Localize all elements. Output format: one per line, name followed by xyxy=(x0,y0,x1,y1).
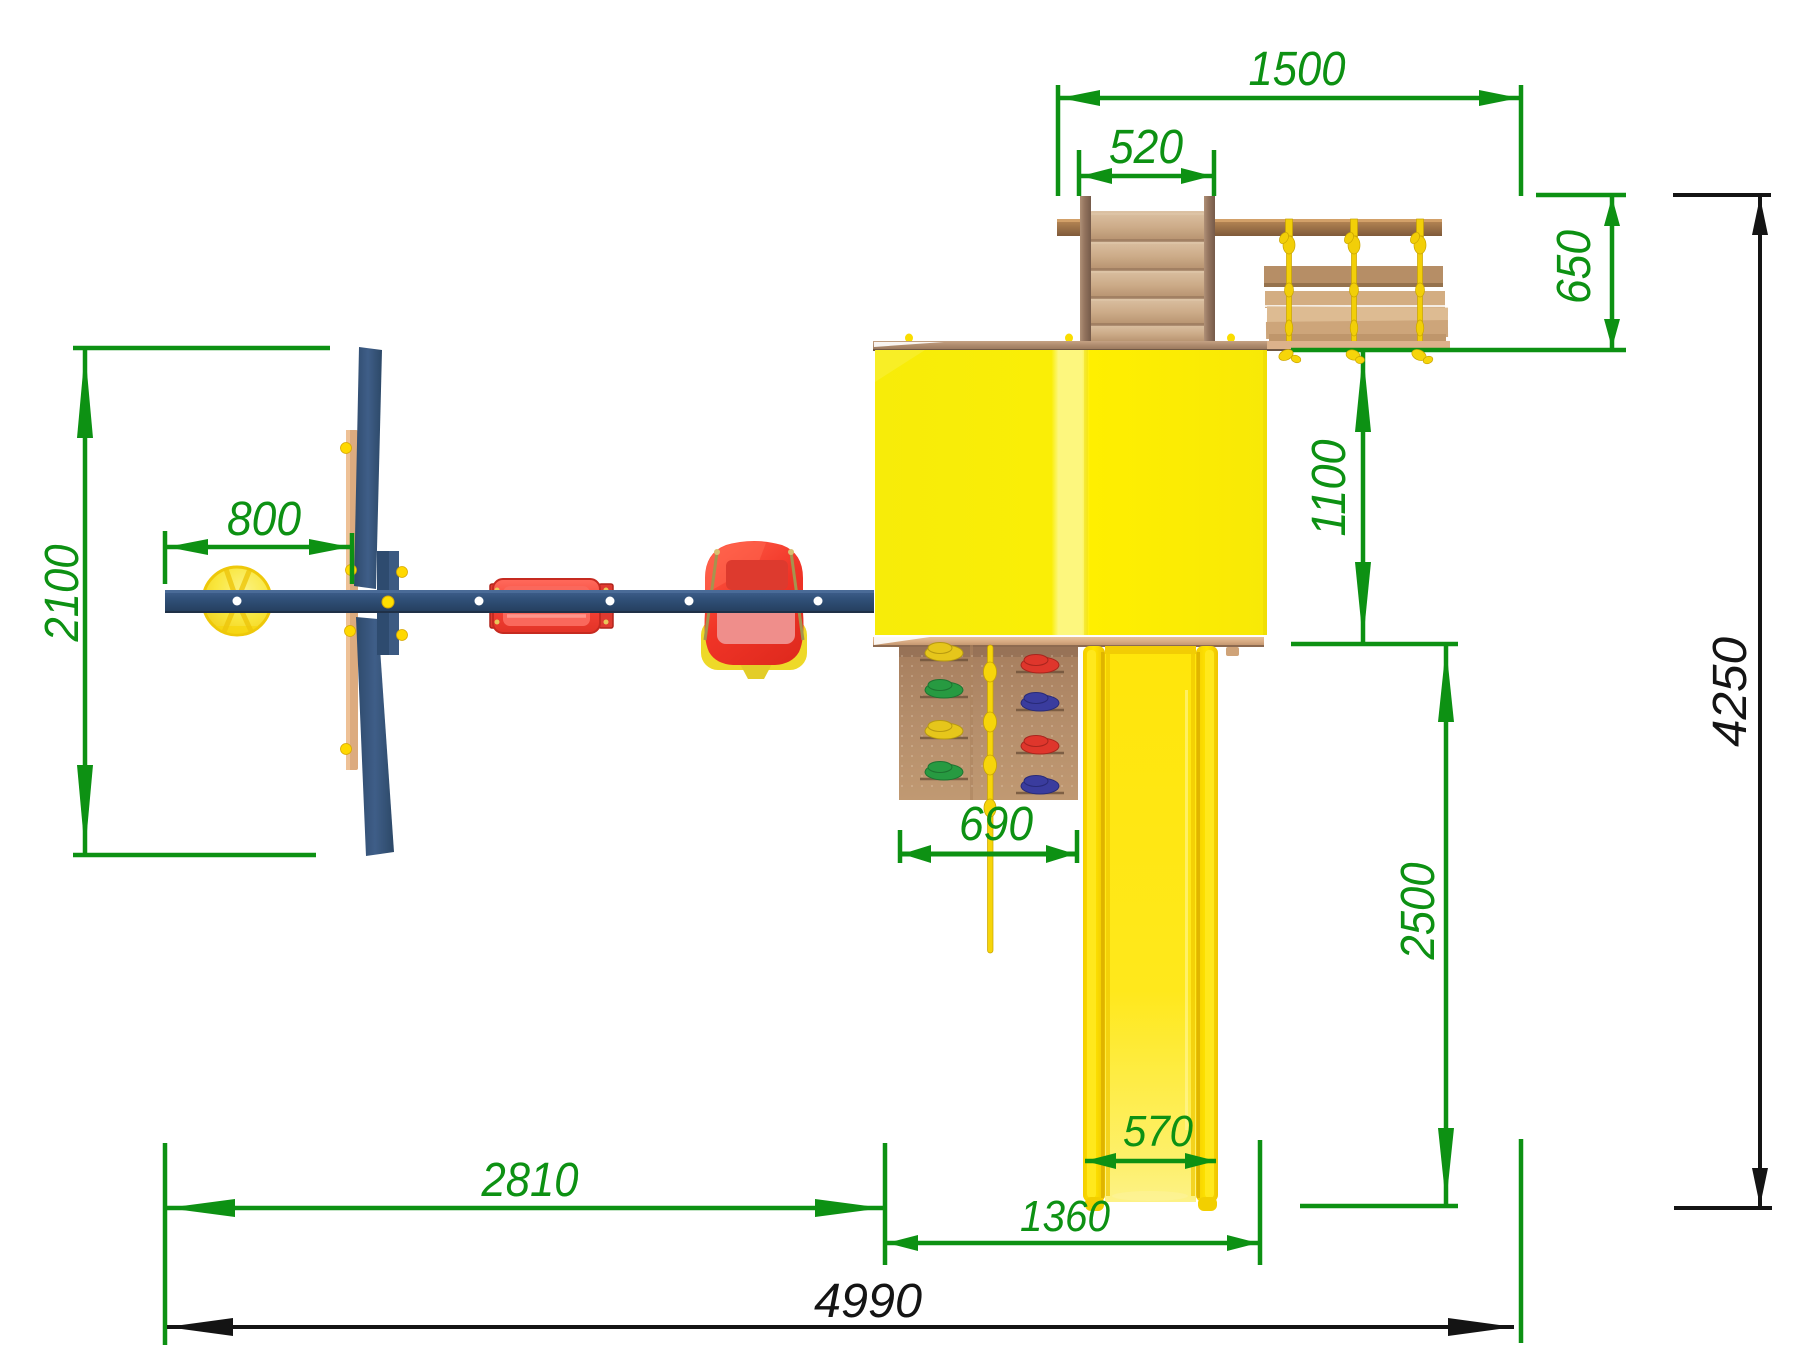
svg-text:800: 800 xyxy=(227,493,301,546)
svg-text:4990: 4990 xyxy=(814,1275,922,1328)
svg-text:650: 650 xyxy=(1548,230,1601,304)
svg-text:520: 520 xyxy=(1109,121,1183,174)
svg-text:1360: 1360 xyxy=(1020,1192,1110,1241)
svg-text:1500: 1500 xyxy=(1249,43,1346,96)
svg-text:570: 570 xyxy=(1123,1107,1193,1156)
svg-text:2500: 2500 xyxy=(1392,862,1445,960)
svg-text:4250: 4250 xyxy=(1704,637,1757,747)
svg-text:690: 690 xyxy=(959,798,1033,851)
svg-text:1100: 1100 xyxy=(1303,439,1356,536)
svg-text:2100: 2100 xyxy=(36,544,89,642)
svg-text:2810: 2810 xyxy=(481,1154,579,1207)
